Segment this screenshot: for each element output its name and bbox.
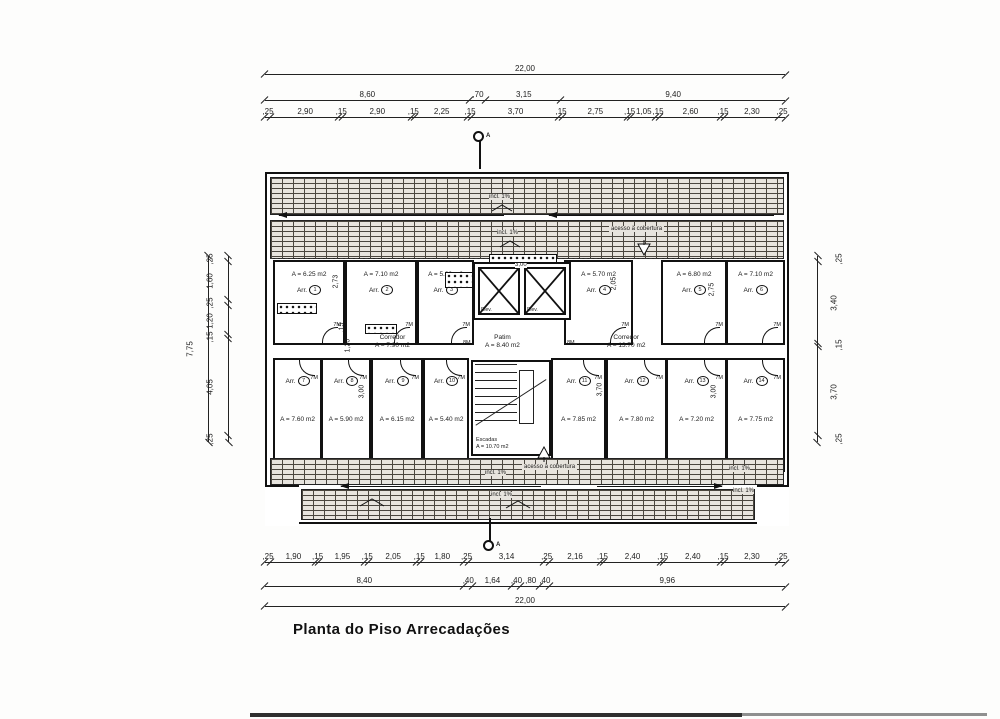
dim-segment: 9,96 — [550, 574, 785, 587]
dim-label: ,25 — [206, 433, 215, 444]
section-marker-top: A — [472, 131, 496, 171]
elevator-label: Elev. — [527, 307, 538, 313]
dim-label: 9,40 — [665, 90, 681, 99]
slope-note: incl. 1% — [491, 492, 512, 498]
door-tag: 7M — [773, 375, 781, 381]
room-number: 13 — [697, 376, 709, 386]
elevator-1: Elev. — [478, 267, 520, 315]
door-arc-icon — [446, 360, 462, 376]
door-tag: 7M — [715, 322, 723, 328]
dim-label: 3,70 — [508, 107, 524, 116]
dim-segment: 1,95 — [319, 550, 365, 563]
corridor-left-label: Corredor A = 7.90 m2 — [375, 334, 410, 350]
dim-segment: 4,05 — [216, 339, 229, 436]
dim-segment: 1,64 — [473, 574, 512, 587]
dim-chain-top-major: 8,60,703,159,40 — [265, 88, 785, 101]
dim-label: ,25 — [776, 552, 787, 561]
room-number: 9 — [397, 376, 409, 386]
inner-dim: 3,00 — [358, 385, 365, 399]
dim-chain-bottom-total: 22,00 — [265, 594, 785, 607]
dim-label: 3,70 — [830, 384, 839, 400]
inner-dim: 2,73 — [332, 275, 339, 289]
dim-label: 1,05 — [636, 107, 652, 116]
door-tag: 7M — [359, 375, 367, 381]
room-area: A = 6.25 m2 — [292, 271, 327, 278]
room-area: A = 7.60 m2 — [280, 416, 315, 423]
dim-label: ,80 — [525, 576, 536, 585]
dim-label: 2,90 — [369, 107, 385, 116]
dim-label: 3,15 — [516, 90, 532, 99]
dim-segment: 2,30 — [725, 550, 779, 563]
room-arr-12: Arr.12 A = 7.80 m2 7M — [606, 358, 667, 472]
door-arc-icon — [704, 360, 720, 376]
room-name: Arr.10 — [434, 376, 458, 386]
room-arr-6: A = 7.10 m2 Arr.6 7M — [726, 260, 785, 345]
slope-note: incl. 1% — [729, 466, 750, 472]
drainage-arrow — [597, 486, 722, 487]
inner-dim: 2,75 — [708, 283, 715, 297]
door-tag: 7M — [715, 375, 723, 381]
room-area: A = 7.80 m2 — [619, 416, 654, 423]
roof-hatch-bottom-1 — [270, 458, 784, 485]
door-tag: 7M — [411, 375, 419, 381]
dim-label: 2,60 — [683, 107, 699, 116]
room-number: 12 — [637, 376, 649, 386]
stairs: Escadas A = 10.70 m2 — [471, 360, 551, 456]
door-tag: 7M — [405, 322, 413, 328]
drainage-arrow — [341, 486, 541, 487]
elevator-2: Elev. — [524, 267, 566, 315]
dim-label: ,25 — [206, 298, 215, 309]
door-arc-icon — [583, 360, 599, 376]
section-letter: A — [486, 133, 490, 139]
drawing-title: Planta do Piso Arrecadações — [293, 621, 510, 638]
dim-label: ,70 — [472, 90, 483, 99]
room-arr-4: A = 5.70 m2 Arr.4 7M — [564, 260, 633, 345]
door-tag: 7M — [594, 375, 602, 381]
dim-label: ,25 — [834, 433, 843, 444]
dim-chain-top-total: 22,00 — [265, 62, 785, 75]
room-area: A = 7.85 m2 — [561, 416, 596, 423]
door-tag: 7M — [621, 322, 629, 328]
dim-label: 1,95 — [335, 552, 351, 561]
room-area: A = 7.20 m2 — [679, 416, 714, 423]
dim-label: 4,05 — [206, 380, 215, 396]
room-name: Arr.12 — [624, 376, 648, 386]
dim-label: 2,40 — [625, 552, 641, 561]
dim-label: 7,75 — [186, 341, 195, 357]
dim-label: ,25 — [776, 107, 787, 116]
dim-label: 2,30 — [744, 552, 760, 561]
elevator-shaft: Elev. Elev. — [473, 262, 571, 320]
dim-label: 1,64 — [485, 576, 501, 585]
roof-access-arrow-icon — [537, 446, 551, 462]
scanned-floor-plan-page: 22,00 8,60,703,159,40 ,252,90,152,90,152… — [0, 0, 1000, 719]
inner-dim: 2,05 — [610, 277, 617, 291]
room-arr-14: Arr.14 A = 7.75 m2 7M — [726, 358, 785, 472]
dim-segment: 1,90 — [271, 550, 316, 563]
room-arr-10: Arr.10 A = 5.40 m2 7M — [423, 358, 469, 472]
room-name: Arr.6 — [743, 285, 767, 295]
vent-strip — [277, 303, 317, 314]
room-arr-13: Arr.13 A = 7.20 m2 7M — [666, 358, 727, 472]
hall-door-tag: 8M — [567, 340, 575, 346]
outline-step — [265, 485, 299, 526]
dim-segment: 2,60 — [660, 105, 721, 118]
dim-label: 3,14 — [499, 552, 515, 561]
room-number: 1 — [309, 285, 321, 295]
dim-label: 2,90 — [297, 107, 313, 116]
dim-segment: 22,00 — [265, 62, 785, 75]
dim-label: 8,60 — [360, 90, 376, 99]
scan-edge-artifact — [742, 713, 987, 716]
slope-symbol-icon — [491, 204, 513, 212]
dim-segment: 2,40 — [664, 550, 721, 563]
dim-label: 3,40 — [830, 295, 839, 311]
room-name: Arr.2 — [369, 285, 393, 295]
room-name: Arr.8 — [334, 376, 358, 386]
room-area: A = 7.10 m2 — [364, 271, 399, 278]
dim-label: ,25 — [206, 253, 215, 264]
door-tag: 7M — [457, 375, 465, 381]
section-letter: A — [496, 542, 500, 548]
door-arc-icon — [704, 327, 720, 343]
dim-segment: 8,60 — [265, 88, 470, 101]
slope-note: incl. 1% — [489, 194, 510, 200]
section-knob-icon — [473, 131, 484, 142]
dim-label: 1,20 — [206, 313, 215, 329]
dim-segment: 2,90 — [271, 105, 340, 118]
room-area: A = 7.75 m2 — [738, 416, 773, 423]
slope-symbol-icon — [359, 498, 385, 507]
dim-label: 1,60 — [206, 273, 215, 289]
room-number: 6 — [756, 285, 768, 295]
slope-note: incl. 1% — [733, 488, 754, 494]
door-arc-icon — [762, 360, 778, 376]
dim-segment: 22,00 — [265, 594, 785, 607]
room-arr-9: Arr.9 A = 6.15 m2 7M — [371, 358, 423, 472]
room-name: Arr.13 — [684, 376, 708, 386]
room-area: A = 5.40 m2 — [429, 416, 464, 423]
dim-segment: 2,30 — [725, 105, 779, 118]
roof-access-arrow-icon — [637, 240, 651, 256]
dim-label: 1,90 — [286, 552, 302, 561]
roof-access-note: acesso à cobertura — [522, 464, 577, 470]
room-number: 2 — [381, 285, 393, 295]
elevator-label: Elev. — [481, 307, 492, 313]
dim-segment: 1,60 — [216, 262, 229, 300]
dim-segment: ,80 — [521, 574, 540, 587]
inner-dim: 3,70 — [596, 383, 603, 397]
floor-plan: incl. 1% incl. 1% acesso à cobertura A =… — [265, 172, 789, 524]
inner-dim: 1,20 — [344, 339, 351, 353]
door-arc-icon — [322, 327, 338, 343]
door-tag: 7M — [310, 375, 318, 381]
dim-segment: 2,05 — [369, 550, 417, 563]
inner-dim: 3,00 — [710, 385, 717, 399]
door-tag: 7M — [773, 322, 781, 328]
dim-segment: 2,40 — [604, 550, 661, 563]
room-name: Arr.5 — [682, 285, 706, 295]
room-name: Arr.4 — [586, 285, 610, 295]
dim-label: 1,80 — [434, 552, 450, 561]
door-tag: 7M — [655, 375, 663, 381]
room-area: A = 6.15 m2 — [380, 416, 415, 423]
room-name: Arr.1 — [297, 285, 321, 295]
dim-segment: 3,15 — [486, 88, 561, 101]
room-name: Arr.11 — [566, 376, 590, 386]
dim-segment: 8,40 — [265, 574, 464, 587]
slope-note: incl. 1% — [485, 470, 506, 476]
drainage-arrow — [279, 215, 504, 216]
dim-segment: 1,80 — [421, 550, 464, 563]
room-arr-7: Arr.7 A = 7.60 m2 7M — [273, 358, 322, 472]
dim-chain-top-minor: ,252,90,152,90,152,25,153,70,152,75,151,… — [265, 105, 785, 118]
dim-segment: 3,14 — [469, 550, 543, 563]
room-number: 7 — [298, 376, 310, 386]
stair-core — [519, 370, 534, 424]
inner-dim: ,15 — [338, 323, 345, 333]
room-name: Arr.9 — [385, 376, 409, 386]
vent-strip — [489, 254, 557, 263]
room-arr-5: A = 6.80 m2 Arr.5 7M — [661, 260, 727, 345]
scan-edge-artifact — [250, 713, 742, 717]
dim-segment: ,25 — [779, 105, 785, 118]
dim-label: 2,30 — [744, 107, 760, 116]
outline-step — [757, 485, 789, 526]
dim-segment: ,25 — [817, 436, 830, 442]
dim-label: 2,16 — [567, 552, 583, 561]
room-number: 8 — [346, 376, 358, 386]
dim-chain-bottom-minor: ,251,90,151,95,152,05,151,80,253,14,252,… — [265, 550, 785, 563]
dim-segment: 2,16 — [550, 550, 601, 563]
corridor-right-label: Corredor A = 13.70 m2 — [607, 334, 646, 350]
roof-access-note: acesso à cobertura — [609, 226, 664, 232]
dim-segment: 9,40 — [561, 88, 785, 101]
dim-segment: ,25 — [216, 436, 229, 442]
door-arc-icon — [400, 360, 416, 376]
room-number: 5 — [694, 285, 706, 295]
dim-segment: 3,70 — [472, 105, 559, 118]
dim-segment: ,25 — [779, 550, 785, 563]
door-tag: 7M — [462, 322, 470, 328]
door-arc-icon — [644, 360, 660, 376]
slope-symbol-icon — [499, 240, 521, 248]
room-arr-8: Arr.8 A = 5.90 m2 7M — [321, 358, 371, 472]
room-number: 10 — [446, 376, 458, 386]
stairs-label: Escadas A = 10.70 m2 — [476, 437, 509, 451]
dim-segment: 3,70 — [817, 347, 830, 436]
patim-label: Patim A = 8.40 m2 — [485, 334, 520, 350]
dim-label: 2,75 — [588, 107, 604, 116]
dim-chain-left-minor: ,251,60,251,20,154,05,25 — [216, 256, 229, 442]
room-area: A = 6.80 m2 — [677, 271, 712, 278]
room-name: Arr.14 — [743, 376, 767, 386]
door-arc-icon — [348, 360, 364, 376]
room-name: Arr.7 — [285, 376, 309, 386]
hall-door-tag: 8M — [463, 340, 471, 346]
dim-label: ,15 — [206, 331, 215, 342]
stair-treads-icon — [475, 364, 517, 424]
vent-grille — [445, 272, 473, 288]
door-arc-icon — [299, 360, 315, 376]
dim-label: 8,40 — [356, 576, 372, 585]
dim-label: 22,00 — [515, 64, 535, 73]
dim-segment: 1,20 — [216, 306, 229, 335]
room-area: A = 5.90 m2 — [329, 416, 364, 423]
dim-segment: 2,90 — [343, 105, 412, 118]
roof-hatch-top-1 — [270, 177, 784, 215]
drainage-arrow — [549, 215, 774, 216]
room-number: 4 — [599, 285, 611, 295]
dim-segment: 3,40 — [817, 262, 830, 344]
room-number: 14 — [756, 376, 768, 386]
dim-label: ,15 — [834, 340, 843, 351]
room-number: 11 — [579, 376, 591, 386]
dim-label: 22,00 — [515, 596, 535, 605]
dim-segment: 2,25 — [415, 105, 468, 118]
dim-label: 2,05 — [385, 552, 401, 561]
room-area: A = 7.10 m2 — [738, 271, 773, 278]
dim-label: 2,40 — [685, 552, 701, 561]
dim-chain-right-minor: ,253,40,153,70,25 — [817, 256, 830, 442]
slope-note: incl. 1% — [497, 230, 518, 236]
door-arc-icon — [762, 327, 778, 343]
dim-label: 2,25 — [434, 107, 450, 116]
dim-segment: 2,75 — [563, 105, 628, 118]
room-arr-11: Arr.11 A = 7.85 m2 7M — [551, 358, 606, 472]
slope-symbol-icon — [505, 500, 531, 509]
dim-label: ,25 — [834, 253, 843, 264]
dim-label: 9,96 — [659, 576, 675, 585]
dim-chain-bottom-major: 8,40,401,64,40,80,409,96 — [265, 574, 785, 587]
vent-strip — [365, 324, 397, 334]
